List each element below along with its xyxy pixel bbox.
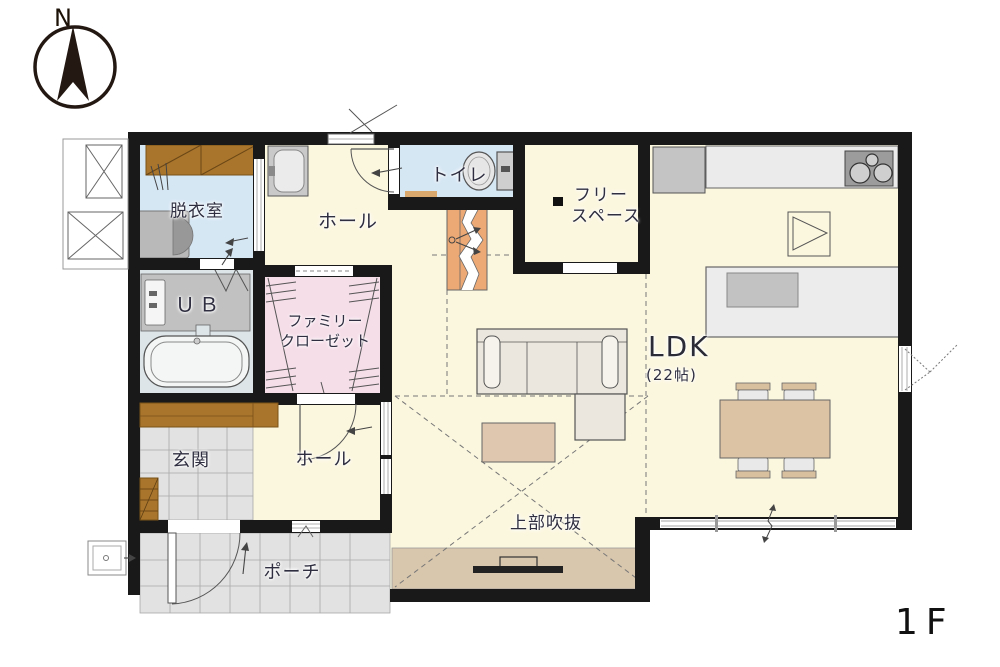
sofa-chaise [575,394,625,440]
room-label-entrance: 玄関 [172,446,210,472]
kitchen-cabinet [653,147,705,193]
chair [736,471,770,478]
compass-icon [35,26,115,107]
room-label-freespace-line2: スペース [571,202,641,227]
unit-bath [137,268,256,394]
chair [782,383,816,390]
washbasin [268,146,308,196]
room-label-bath: ＵＢ [175,289,223,318]
shoe-cabinet [140,403,278,427]
room-label-porch: ポーチ [264,558,321,584]
room-label-toilet: トイレ [431,161,488,187]
coffee-table [482,423,555,462]
chair [782,471,816,478]
floor-plan: N 脱衣室 ＵＢ ファミリー クローゼット ホール トイレ フリー スペース L… [0,0,1000,667]
east-window [899,344,958,392]
stove [845,151,893,186]
floor-plan-drawing [0,0,1000,667]
room-label-closet-line1: ファミリー [280,311,370,331]
room-label-hall-lower: ホール [296,445,353,471]
chair [736,383,770,390]
bath-faucet [194,338,200,344]
room-label-void: 上部吹抜 [510,509,582,534]
compass-north-label: N [54,4,72,32]
dining-table [720,400,830,458]
room-label-hall-upper: ホール [318,207,378,234]
shower-fixture [149,291,157,296]
entrance-shelf [140,478,158,520]
kitchen-sink [727,273,798,307]
shower-shelf [145,280,165,325]
entrance-door-panel [168,533,176,603]
stairs [447,206,487,290]
room-label-closet-line2: クローゼット [280,331,370,351]
ac-units [63,139,128,269]
bullet-square [553,197,563,206]
room-label-dressing: 脱衣室 [170,197,224,222]
room-label-closet: ファミリー クローゼット [280,311,370,351]
floor-label: 1F [895,602,955,643]
room-label-ldk: LDK [648,330,710,363]
room-label-ldk-size: (22帖) [646,364,697,385]
